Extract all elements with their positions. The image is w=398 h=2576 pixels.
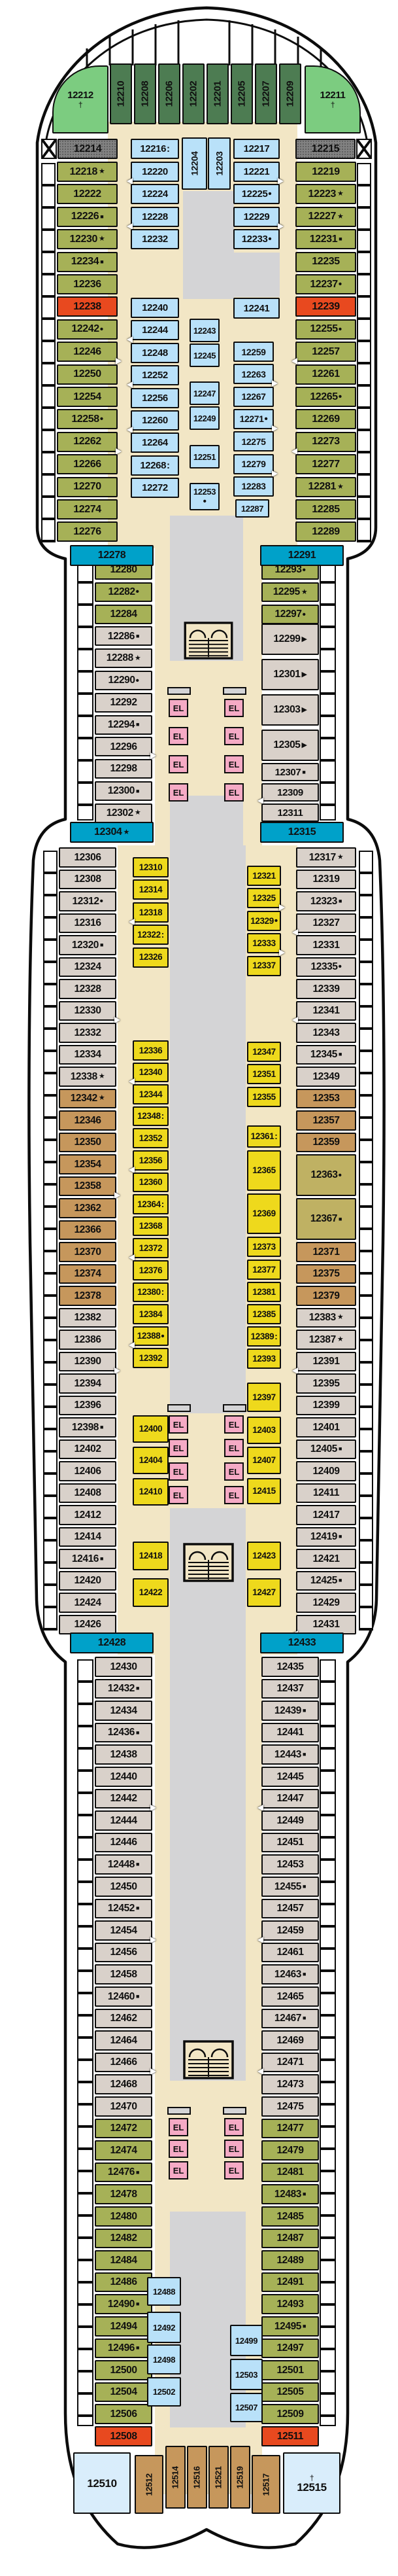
elevator-badge: EL	[224, 783, 244, 802]
cabin-12357: 12357	[296, 1110, 356, 1131]
cabin-12414: 12414	[59, 1527, 116, 1547]
cabin-12373: 12373	[247, 1237, 281, 1257]
cabin-12390: 12390	[59, 1352, 116, 1372]
cabin-12473: 12473	[261, 2074, 319, 2094]
cabin-12207: 12207	[255, 63, 277, 124]
cabin-12304: 12304★	[70, 822, 154, 843]
cabin-12389: 12389:	[247, 1326, 281, 1347]
cabin-12358: 12358	[59, 1176, 116, 1197]
connecting-door-arrow-icon	[150, 752, 156, 759]
cabin-12433: 12433	[260, 1632, 344, 1653]
elevator-badge: EL	[224, 1486, 244, 1504]
connecting-door-arrow-icon	[127, 178, 133, 185]
cabin-12204: 12204	[182, 137, 207, 190]
cabin-12258: 12258•	[57, 409, 118, 429]
cabin-12486: 12486	[95, 2272, 152, 2293]
elevator-badge: EL	[224, 755, 244, 773]
cabin-12464: 12464	[95, 2030, 152, 2051]
cabin-12281: 12281★	[295, 477, 356, 497]
elevator-badge: EL	[224, 1462, 244, 1481]
cabin-12501: 12501	[261, 2360, 319, 2380]
cabin-12345: 12345■	[296, 1045, 356, 1065]
cabin-12405: 12405■	[296, 1439, 356, 1460]
cabin-12238: 12238	[57, 296, 118, 317]
cabin-12303: 12303▶	[261, 694, 319, 726]
cabin-12252: 12252	[131, 365, 179, 385]
cabin-12324: 12324	[59, 957, 116, 978]
cabin-12393: 12393	[247, 1349, 281, 1369]
cabin-12394: 12394	[59, 1373, 116, 1394]
cabin-12451: 12451	[261, 1833, 319, 1853]
cabin-12337: 12337	[247, 956, 281, 976]
cabin-12245: 12245	[190, 344, 220, 367]
cabin-12331: 12331	[296, 935, 356, 955]
cabin-12371: 12371	[296, 1242, 356, 1262]
stairs-icon	[183, 2039, 234, 2080]
cabin-12372: 12372	[133, 1238, 169, 1258]
cabin-12521: 12521	[208, 2446, 229, 2509]
elevator-badge: EL	[169, 755, 188, 773]
cabin-12489: 12489	[261, 2250, 319, 2270]
cabin-12398: 12398■	[59, 1417, 116, 1438]
cabin-12477: 12477	[261, 2119, 319, 2139]
cabin-12310: 12310	[133, 857, 169, 877]
cabin-12339: 12339	[296, 979, 356, 999]
cabin-12478: 12478	[95, 2184, 152, 2204]
cabin-12485: 12485	[261, 2206, 319, 2227]
cabin-12407: 12407	[247, 1447, 281, 1474]
cabin-12403: 12403	[247, 1417, 281, 1444]
connecting-door-arrow-icon	[278, 223, 284, 230]
cabin-12272: 12272	[131, 478, 179, 498]
elevator-lobby-cap	[223, 2107, 246, 2115]
cabin-12396: 12396	[59, 1396, 116, 1416]
cabin-12305: 12305▶	[261, 730, 319, 761]
elevator-badge: EL	[224, 2140, 244, 2158]
cabin-12235: 12235	[295, 252, 356, 272]
cabin-12431: 12431	[296, 1615, 356, 1635]
cabin-12224: 12224	[131, 184, 179, 204]
cabin-12262: 12262	[57, 432, 118, 452]
balcony-strip	[43, 851, 58, 1631]
cabin-12517: 12517	[252, 2455, 280, 2514]
cabin-12423: 12423	[247, 1542, 281, 1570]
cabin-12286: 12286■	[95, 626, 152, 646]
cabin-12392: 12392	[133, 1348, 169, 1368]
cabin-12375: 12375	[296, 1264, 356, 1284]
cabin-12402: 12402	[59, 1439, 116, 1460]
cabin-12446: 12446	[95, 1833, 152, 1853]
cabin-12460: 12460■	[95, 1986, 152, 2007]
cabin-12332: 12332	[59, 1023, 116, 1043]
elevator-badge: EL	[224, 2161, 244, 2179]
cabin-12377: 12377	[247, 1260, 281, 1280]
cabin-12256: 12256	[131, 388, 179, 408]
cabin-12342: 12342★	[59, 1089, 116, 1109]
balcony-strip	[357, 163, 371, 542]
cabin-12410: 12410	[133, 1478, 169, 1506]
cabin-12326: 12326	[133, 947, 169, 968]
cabin-12465: 12465	[261, 1986, 319, 2007]
cabin-12363: 12363•	[296, 1154, 356, 1196]
cabin-12450: 12450	[95, 1877, 152, 1897]
cabin-12440: 12440	[95, 1767, 152, 1787]
cabin-12428: 12428	[70, 1632, 154, 1653]
cabin-12268: 12268:	[131, 455, 179, 476]
elevator-badge: EL	[169, 1415, 188, 1434]
cabin-12306: 12306	[59, 847, 116, 868]
connecting-door-arrow-icon	[291, 358, 297, 364]
cabin-12294: 12294■	[95, 715, 152, 735]
cabin-12383: 12383★	[296, 1308, 356, 1328]
cabin-12462: 12462	[95, 2009, 152, 2029]
cabin-12243: 12243	[190, 319, 220, 342]
cabin-12287: 12287	[235, 499, 269, 518]
cabin-12319: 12319	[296, 870, 356, 890]
cabin-12510: 12510	[73, 2452, 131, 2514]
elevator-badge: EL	[169, 783, 188, 802]
elevator-lobby-cap	[223, 1404, 246, 1412]
cabin-12322: 12322:	[133, 925, 169, 945]
elevator-lobby-cap	[167, 2107, 191, 2115]
cabin-12312: 12312•	[59, 891, 116, 911]
cabin-12334: 12334	[59, 1045, 116, 1065]
cabin-12466: 12466	[95, 2053, 152, 2073]
cabin-12249: 12249	[190, 406, 220, 430]
cabin-12369: 12369	[247, 1193, 281, 1234]
cabin-12267: 12267	[233, 387, 274, 407]
cabin-12290: 12290•	[95, 671, 152, 690]
cabin-12222: 12222	[57, 184, 118, 204]
cabin-12242: 12242•	[57, 319, 118, 340]
cabin-12387: 12387★	[296, 1330, 356, 1350]
cabin-12362: 12362	[59, 1198, 116, 1218]
cabin-12233: 12233•	[233, 229, 280, 249]
connecting-door-arrow-icon	[127, 381, 133, 388]
cabin-12347: 12347	[247, 1042, 281, 1062]
cabin-12449: 12449	[261, 1810, 319, 1831]
cabin-12484: 12484	[95, 2250, 152, 2270]
cabin-12223: 12223★	[295, 184, 356, 204]
cabin-12221: 12221	[233, 162, 280, 182]
cabin-12461: 12461	[261, 1943, 319, 1963]
elevator-badge: EL	[169, 2140, 188, 2158]
cabin-12374: 12374	[59, 1264, 116, 1284]
cabin-12420: 12420	[59, 1571, 116, 1591]
cabin-12270: 12270	[57, 477, 118, 497]
cabin-12456: 12456	[95, 1943, 152, 1963]
cabin-12425: 12425■	[296, 1571, 356, 1591]
cabin-12469: 12469	[261, 2030, 319, 2051]
cabin-12266: 12266	[57, 454, 118, 474]
elevator-lobby-cap	[167, 1404, 191, 1412]
cabin-12480: 12480	[95, 2206, 152, 2227]
cabin-12365: 12365	[247, 1150, 281, 1191]
crossed-box-icon	[41, 139, 57, 159]
cabin-12289: 12289	[295, 521, 356, 542]
cabin-12384: 12384	[133, 1304, 169, 1324]
cabin-12277: 12277	[295, 454, 356, 474]
cabin-12508: 12508	[95, 2426, 152, 2446]
balcony-strip	[77, 1659, 93, 2426]
cabin-12226: 12226■	[57, 207, 118, 227]
cabin-12237: 12237•	[295, 274, 356, 294]
cabin-12248: 12248	[131, 343, 179, 363]
cabin-12502: 12502	[147, 2377, 181, 2407]
interior-void	[233, 253, 280, 297]
cabin-12255: 12255•	[295, 319, 356, 340]
cabin-12361: 12361:	[247, 1125, 281, 1148]
cabin-12297: 12297•	[261, 605, 319, 624]
balcony-strip	[320, 560, 336, 820]
cabin-12269: 12269	[295, 409, 356, 429]
cabin-12260: 12260	[131, 410, 179, 431]
cabin-12376: 12376	[133, 1260, 169, 1280]
cabin-12457: 12457	[261, 1899, 319, 1919]
cabin-12261: 12261	[295, 364, 356, 385]
cabin-12516: 12516	[187, 2446, 207, 2509]
cabin-12328: 12328	[59, 979, 116, 999]
cabin-12360: 12360	[133, 1173, 169, 1193]
cabin-12519: 12519	[230, 2446, 250, 2509]
balcony-strip	[77, 560, 93, 820]
cabin-12491: 12491	[261, 2272, 319, 2293]
connecting-door-arrow-icon	[116, 358, 122, 364]
cabin-12336: 12336	[133, 1040, 169, 1061]
cabin-12412: 12412	[59, 1505, 116, 1525]
elevator-badge: EL	[224, 2118, 244, 2136]
cabin-12492: 12492	[147, 2312, 181, 2343]
cabin-12206: 12206	[158, 63, 180, 124]
elevator-badge: EL	[224, 1439, 244, 1457]
cabin-12283: 12283	[233, 476, 274, 497]
cabin-12445: 12445	[261, 1767, 319, 1787]
cabin-12236: 12236	[57, 274, 118, 294]
cabin-12364: 12364:	[133, 1194, 169, 1214]
cabin-12320: 12320■	[59, 935, 116, 955]
cabin-12340: 12340	[133, 1063, 169, 1083]
stairs-icon	[183, 622, 234, 660]
cabin-12318: 12318	[133, 902, 169, 923]
cabin-12257: 12257	[295, 342, 356, 362]
cabin-12316: 12316	[59, 913, 116, 934]
cabin-12230: 12230★	[57, 229, 118, 249]
elevator-lobby-cap	[167, 687, 191, 695]
cabin-12454: 12454	[95, 1920, 152, 1941]
elevator-badge: EL	[224, 699, 244, 717]
cabin-12338: 12338★	[59, 1067, 116, 1087]
cabin-12463: 12463■	[261, 1964, 319, 1985]
cabin-12216: 12216:	[131, 139, 179, 159]
cabin-12493: 12493	[261, 2294, 319, 2314]
cabin-12327: 12327	[296, 913, 356, 934]
cabin-12391: 12391	[296, 1352, 356, 1372]
cabin-12432: 12432■	[95, 1679, 152, 1699]
cabin-12474: 12474	[95, 2140, 152, 2161]
cabin-12426: 12426	[59, 1615, 116, 1635]
cabin-12353: 12353	[296, 1089, 356, 1109]
cabin-12429: 12429	[296, 1593, 356, 1613]
cabin-12400: 12400	[133, 1415, 169, 1443]
cabin-12416: 12416■	[59, 1549, 116, 1569]
cabin-12271: 12271•	[233, 409, 274, 429]
cabin-12210: 12210	[110, 63, 132, 124]
cabin-12359: 12359	[296, 1133, 356, 1153]
cabin-12355: 12355	[247, 1087, 281, 1107]
cabin-12495: 12495■	[261, 2316, 319, 2337]
cabin-12309: 12309	[261, 783, 319, 802]
cabin-12380: 12380:	[133, 1282, 169, 1303]
cabin-12453: 12453	[261, 1854, 319, 1875]
elevator-badge: EL	[169, 1462, 188, 1481]
cabin-12494: 12494	[95, 2316, 152, 2337]
interior-void	[170, 796, 243, 845]
elevator-badge: EL	[169, 1439, 188, 1457]
cabin-12385: 12385	[247, 1304, 281, 1324]
elevator-badge: EL	[169, 2161, 188, 2179]
cabin-12475: 12475	[261, 2096, 319, 2117]
cabin-12499: 12499	[230, 2325, 263, 2356]
cabin-12329: 12329•	[247, 911, 281, 931]
cabin-12458: 12458	[95, 1964, 152, 1985]
cabin-12511: 12511	[261, 2426, 319, 2446]
cabin-12244: 12244	[131, 320, 179, 340]
cabin-12354: 12354	[59, 1154, 116, 1174]
cabin-12487: 12487	[261, 2229, 319, 2249]
cabin-12437: 12437	[261, 1679, 319, 1699]
cabin-12514: 12514	[165, 2446, 186, 2509]
cabin-12503: 12503	[230, 2359, 263, 2390]
cabin-12421: 12421	[296, 1549, 356, 1569]
cabin-12234: 12234■	[57, 252, 118, 272]
cabin-12295: 12295★	[261, 582, 319, 602]
elevator-badge: EL	[169, 699, 188, 717]
cabin-12509: 12509	[261, 2404, 319, 2424]
cabin-12308: 12308	[59, 870, 116, 890]
cabin-12205: 12205	[231, 63, 253, 124]
cabin-12315: 12315	[260, 822, 344, 843]
cabin-12246: 12246	[57, 342, 118, 362]
cabin-12448: 12448■	[95, 1854, 152, 1875]
cabin-12442: 12442	[95, 1789, 152, 1809]
cabin-12483: 12483■	[261, 2184, 319, 2204]
cabin-12333: 12333	[247, 933, 281, 953]
cabin-12408: 12408	[59, 1483, 116, 1504]
connecting-door-arrow-icon	[272, 380, 278, 387]
cabin-12323: 12323■	[296, 891, 356, 911]
cabin-12404: 12404	[133, 1447, 169, 1474]
cabin-12406: 12406	[59, 1461, 116, 1481]
cabin-12409: 12409	[296, 1461, 356, 1481]
cabin-12505: 12505	[261, 2382, 319, 2403]
cabin-12382: 12382	[59, 1308, 116, 1328]
cabin-12381: 12381	[247, 1282, 281, 1302]
cabin-12415: 12415	[247, 1478, 281, 1504]
cabin-12386: 12386	[59, 1330, 116, 1350]
cabin-12274: 12274	[57, 499, 118, 520]
cabin-12220: 12220	[131, 162, 179, 182]
cabin-12232: 12232	[131, 229, 179, 249]
cabin-12343: 12343	[296, 1023, 356, 1043]
cabin-12470: 12470	[95, 2096, 152, 2117]
cabin-12512: 12512	[135, 2455, 163, 2514]
cabin-12285: 12285	[295, 499, 356, 520]
balcony-strip	[41, 163, 56, 542]
cabin-12325: 12325	[247, 888, 281, 908]
cabin-12388: 12388•	[133, 1326, 169, 1347]
cabin-12507: 12507	[230, 2393, 263, 2422]
cabin-12455: 12455■	[261, 1877, 319, 1897]
cabin-12225: 12225•	[233, 184, 280, 204]
cabin-12411: 12411	[296, 1483, 356, 1504]
cabin-12292: 12292	[95, 693, 152, 713]
cabin-12330: 12330	[59, 1001, 116, 1021]
cabin-12275: 12275	[233, 431, 274, 451]
cabin-12452: 12452■	[95, 1899, 152, 1919]
stairs-icon	[183, 1542, 234, 1583]
cabin-12419: 12419■	[296, 1527, 356, 1547]
cabin-12350: 12350	[59, 1133, 116, 1153]
cabin-12300: 12300■	[95, 781, 152, 801]
cabin-12288: 12288★	[95, 648, 152, 668]
cabin-12302: 12302★	[95, 803, 152, 823]
connecting-door-arrow-icon	[279, 949, 285, 956]
cabin-12472: 12472	[95, 2119, 152, 2139]
cabin-12341: 12341	[296, 1001, 356, 1021]
cabin-12351: 12351	[247, 1064, 281, 1084]
cabin-12378: 12378	[59, 1286, 116, 1306]
cabin-12228: 12228	[131, 207, 179, 227]
cabin-12422: 12422	[133, 1578, 169, 1607]
cabin-12490: 12490■	[95, 2294, 152, 2314]
cabin-12296: 12296	[95, 737, 152, 756]
cabin-12435: 12435	[261, 1657, 319, 1677]
cabin-12239: 12239	[295, 296, 356, 317]
cabin-12488: 12488	[147, 2277, 181, 2306]
cabin-12447: 12447	[261, 1789, 319, 1809]
cabin-12459: 12459	[261, 1920, 319, 1941]
cabin-12263: 12263	[233, 364, 274, 384]
cabin-12219: 12219	[295, 162, 356, 182]
cabin-12500: 12500	[95, 2360, 152, 2380]
cabin-12498: 12498	[147, 2344, 181, 2374]
cabin-12229: 12229	[233, 207, 280, 227]
cabin-12301: 12301▶	[261, 659, 319, 690]
connecting-door-arrow-icon	[279, 904, 285, 911]
cabin-12482: 12482	[95, 2229, 152, 2249]
cabin-12291: 12291	[260, 545, 344, 566]
cabin-12356: 12356	[133, 1150, 169, 1171]
cabin-12348: 12348:	[133, 1106, 169, 1127]
cabin-12476: 12476■	[95, 2162, 152, 2183]
elevator-badge: EL	[169, 1486, 188, 1504]
cruise-deck-plan: ELELELELELELELELELELELELELELELELELELELEL…	[0, 0, 398, 2576]
cabin-12395: 12395	[296, 1373, 356, 1394]
cabin-12344: 12344	[133, 1084, 169, 1104]
cabin-12434: 12434	[95, 1701, 152, 1721]
connecting-door-arrow-icon	[127, 223, 133, 230]
cabin-12438: 12438	[95, 1744, 152, 1765]
cabin-12481: 12481	[261, 2162, 319, 2183]
connecting-door-arrow-icon	[127, 336, 133, 343]
cabin-12264: 12264	[131, 432, 179, 453]
cabin-12397: 12397	[247, 1383, 281, 1412]
cabin-12299: 12299▶	[261, 624, 319, 655]
cabin-12479: 12479	[261, 2140, 319, 2161]
cabin-12314: 12314	[133, 879, 169, 900]
cabin-12250: 12250	[57, 364, 118, 385]
cabin-12273: 12273	[295, 432, 356, 452]
